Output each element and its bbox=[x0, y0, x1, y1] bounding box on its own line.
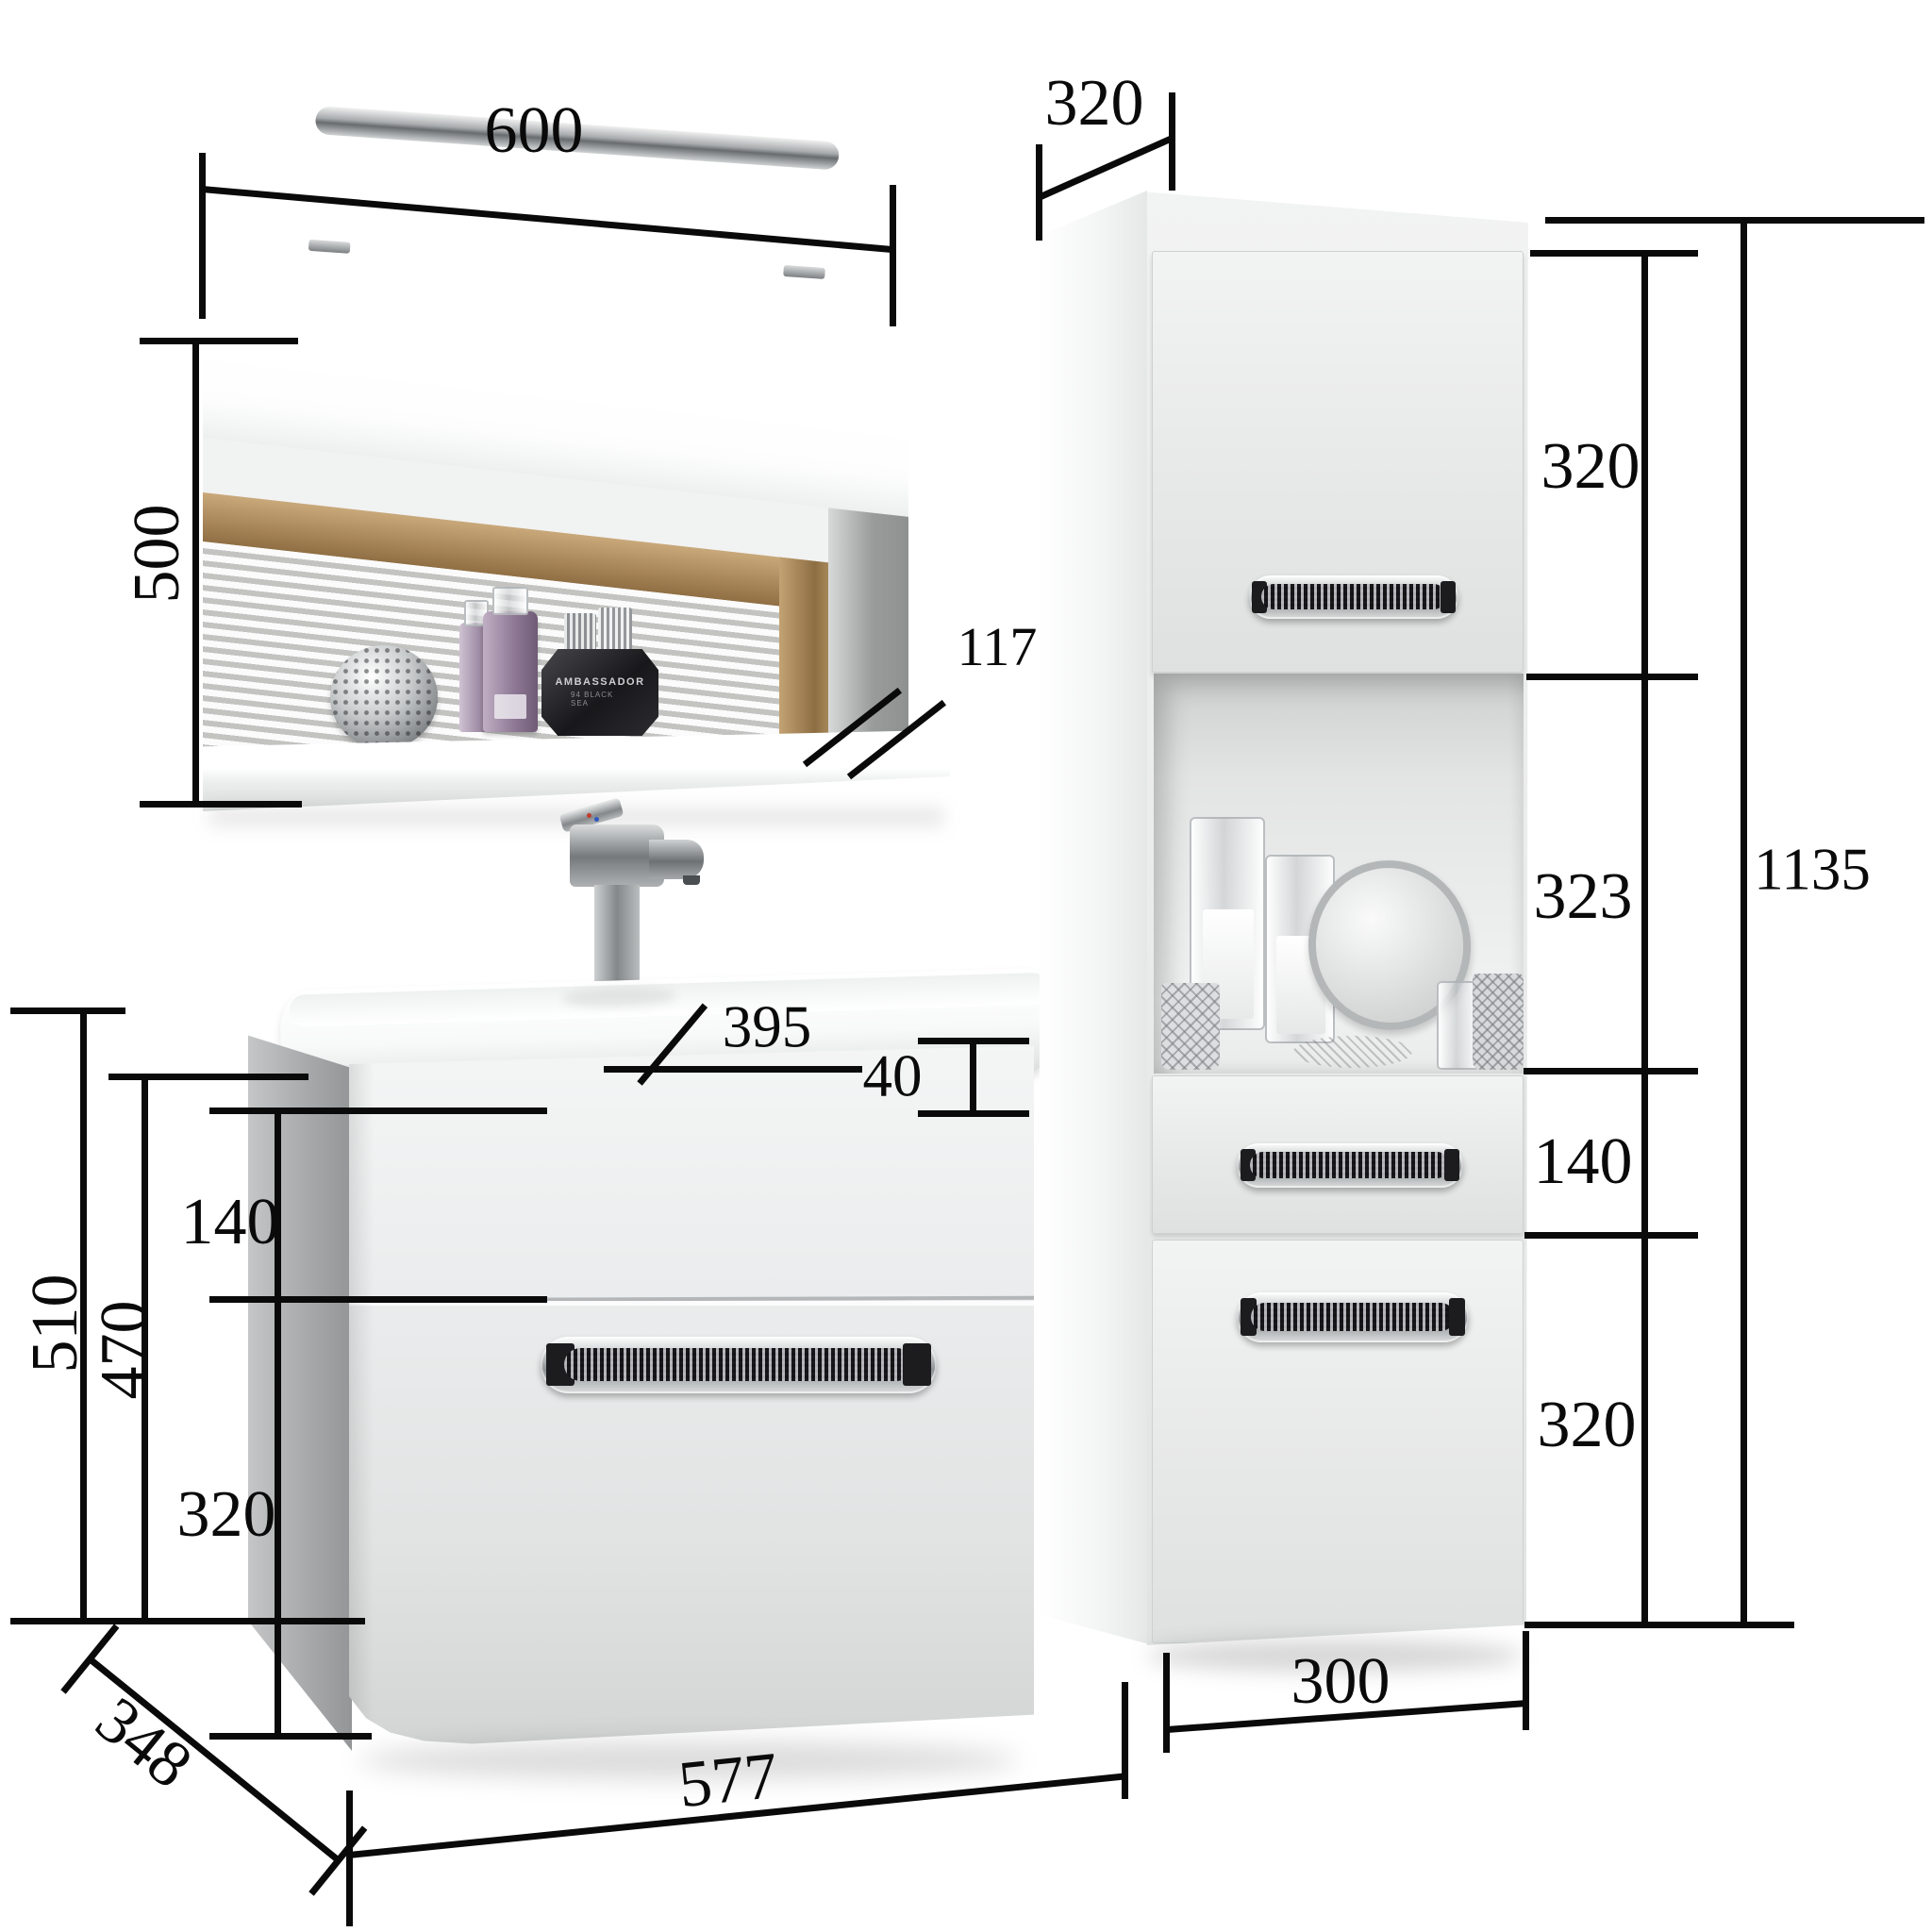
faucet-spout bbox=[649, 840, 704, 879]
tick-vanity-divider bbox=[209, 1296, 547, 1303]
dimline-1135 bbox=[1740, 220, 1747, 1625]
label-cabinet-niche: 323 bbox=[1534, 864, 1633, 930]
niche-diamond-cup-left bbox=[1161, 983, 1220, 1070]
perfume-bottle-purple-label bbox=[494, 694, 526, 719]
label-cabinet-total-height: 1135 bbox=[1754, 841, 1871, 900]
tick-600-left bbox=[199, 153, 206, 319]
niche-dispenser-pump bbox=[1446, 964, 1471, 983]
tick-right-nichebottom bbox=[1524, 1068, 1698, 1074]
tick-vanity-body-top bbox=[108, 1074, 308, 1080]
vanity-drawer-handle bbox=[541, 1337, 937, 1393]
dimline-320depth bbox=[1038, 135, 1174, 201]
tall-cabinet-lower-door-handle bbox=[1237, 1292, 1469, 1342]
led-glow bbox=[320, 176, 822, 285]
tick-right-drawerbottom bbox=[1524, 1232, 1698, 1239]
label-basin-thickness: 40 bbox=[863, 1047, 923, 1107]
tick-vanity-bottom bbox=[10, 1618, 365, 1624]
label-shelf-depth: 117 bbox=[958, 620, 1038, 675]
faucet-lever-dot-blue bbox=[594, 817, 599, 822]
label-cabinet-drawer: 140 bbox=[1534, 1129, 1633, 1195]
label-vanity-body-height: 470 bbox=[92, 1301, 158, 1400]
tick-vanity-basin-top bbox=[10, 1008, 125, 1014]
perfume-bottle-black: AMBASSADOR 94 BLACK SEA bbox=[541, 649, 658, 736]
niche-dish bbox=[1293, 1036, 1412, 1068]
perfume-cap-ribbed-right bbox=[598, 608, 632, 653]
label-cabinet-width: 300 bbox=[1291, 1649, 1391, 1715]
tick-vanity-320-bottom bbox=[209, 1733, 372, 1740]
label-mirror-height: 500 bbox=[125, 505, 191, 604]
tick-300-left bbox=[1163, 1653, 1170, 1753]
faucet-lever-dot-red bbox=[587, 813, 591, 818]
label-mirror-width: 600 bbox=[485, 98, 584, 164]
dimline-40 bbox=[970, 1041, 976, 1115]
tick-right-top-inner bbox=[1530, 250, 1698, 257]
tick-348-bottom bbox=[308, 1825, 367, 1895]
label-basin-depth: 395 bbox=[723, 998, 812, 1058]
label-cabinet-depth: 320 bbox=[1045, 71, 1144, 137]
tick-300-right bbox=[1523, 1631, 1529, 1730]
mesh-sphere-neck bbox=[366, 628, 402, 649]
vanity-side-panel bbox=[248, 1028, 352, 1751]
label-vanity-depth: 348 bbox=[84, 1687, 203, 1800]
led-foot-left bbox=[308, 240, 351, 254]
tick-577-right bbox=[1122, 1682, 1128, 1799]
faucet-aerator bbox=[683, 875, 700, 885]
reflection-wood-stile bbox=[779, 558, 830, 747]
tall-cabinet-drawer-handle bbox=[1237, 1143, 1463, 1188]
tall-cabinet-side-panel bbox=[1040, 191, 1147, 1645]
tick-600-right bbox=[890, 185, 896, 326]
dimline-500 bbox=[192, 341, 199, 806]
vanity-left-edge-shade bbox=[349, 1041, 374, 1751]
tick-right-doorbottom bbox=[1526, 674, 1698, 680]
tick-500-top bbox=[140, 338, 298, 344]
label-cabinet-upper-door: 320 bbox=[1541, 434, 1641, 500]
niche-candle-left-stem bbox=[1218, 1030, 1237, 1062]
label-vanity-width: 577 bbox=[675, 1743, 781, 1819]
tick-right-top-outer bbox=[1545, 217, 1924, 224]
perfume-black-label-line2: 94 BLACK SEA bbox=[571, 691, 629, 708]
dimline-right-inner bbox=[1641, 253, 1648, 1625]
label-vanity-bottom-drawer: 320 bbox=[177, 1482, 276, 1548]
label-vanity-top-drawer: 140 bbox=[181, 1190, 280, 1256]
tall-cabinet-upper-door-handle bbox=[1249, 575, 1458, 619]
underline-395 bbox=[604, 1066, 862, 1073]
perfume-cap-ribbed-left bbox=[564, 613, 596, 655]
perfume-black-label-line1: AMBASSADOR bbox=[555, 676, 644, 688]
tick-500-bottom bbox=[140, 801, 302, 808]
label-cabinet-lower-door: 320 bbox=[1538, 1392, 1637, 1458]
diagram-canvas: AMBASSADOR 94 BLACK SEA bbox=[0, 0, 1932, 1932]
tick-right-bottom bbox=[1524, 1622, 1794, 1628]
label-vanity-total-height: 510 bbox=[23, 1274, 89, 1374]
tick-577-left bbox=[346, 1790, 353, 1926]
vanity-front bbox=[349, 1041, 1034, 1751]
tall-cabinet-front bbox=[1147, 191, 1528, 1645]
mesh-sphere-vase bbox=[330, 645, 438, 749]
tick-vanity-140-top bbox=[209, 1108, 547, 1114]
tall-cabinet-niche bbox=[1154, 674, 1524, 1074]
perfume-bottle-purple-cap bbox=[492, 587, 528, 615]
niche-diamond-cup-right bbox=[1473, 974, 1524, 1070]
